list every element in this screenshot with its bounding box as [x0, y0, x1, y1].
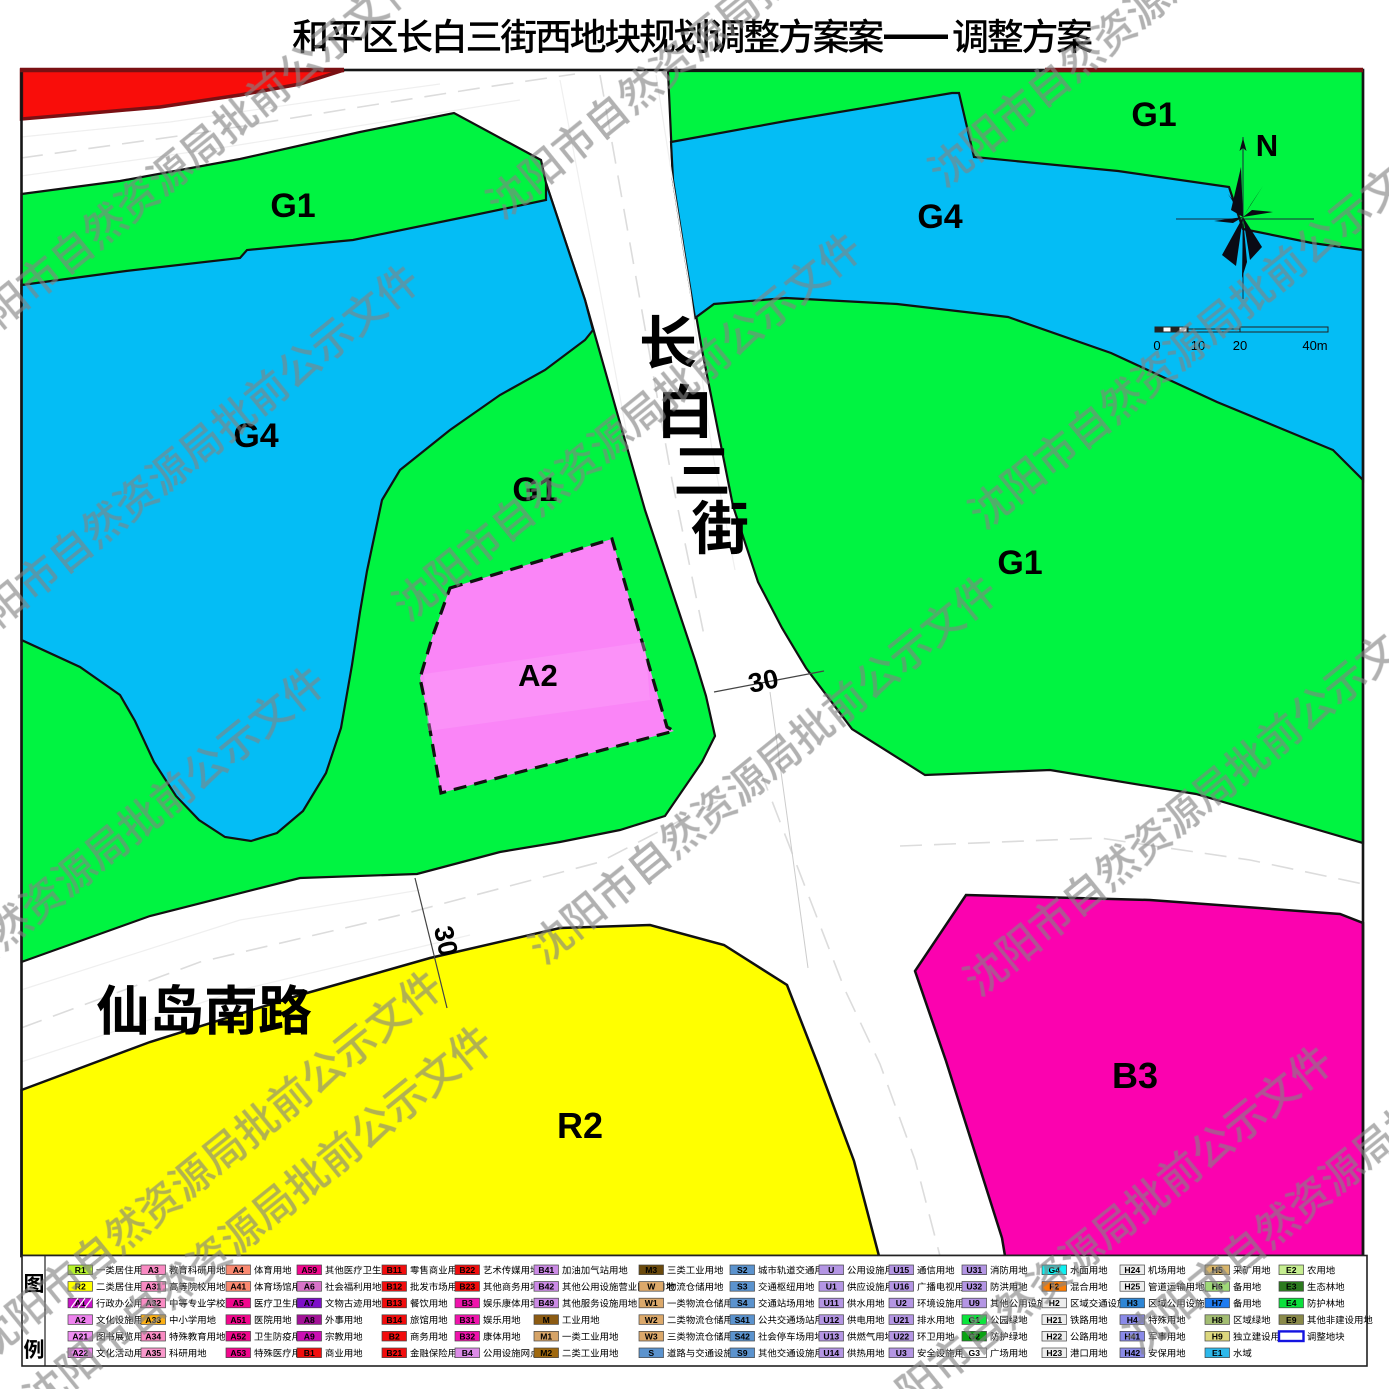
svg-text:H21: H21 — [1046, 1315, 1062, 1325]
svg-text:B11: B11 — [387, 1265, 403, 1275]
svg-text:B31: B31 — [459, 1315, 475, 1325]
svg-text:M2: M2 — [540, 1348, 552, 1358]
svg-text:B14: B14 — [386, 1315, 402, 1325]
svg-text:R2: R2 — [557, 1105, 603, 1146]
svg-text:U13: U13 — [823, 1331, 839, 1341]
svg-text:U32: U32 — [966, 1282, 982, 1292]
svg-text:B13: B13 — [386, 1298, 402, 1308]
svg-text:B21: B21 — [386, 1348, 402, 1358]
svg-text:H23: H23 — [1046, 1348, 1062, 1358]
svg-text:E1: E1 — [1212, 1348, 1223, 1358]
svg-text:A51: A51 — [230, 1315, 246, 1325]
svg-text:G4: G4 — [917, 198, 962, 236]
svg-text:E3: E3 — [1286, 1282, 1297, 1292]
svg-text:A8: A8 — [304, 1315, 315, 1325]
svg-text:A41: A41 — [230, 1282, 246, 1292]
svg-text:A7: A7 — [304, 1298, 315, 1308]
svg-text:G1: G1 — [1131, 96, 1176, 134]
svg-text:B23: B23 — [459, 1282, 475, 1292]
svg-text:H24: H24 — [1124, 1265, 1140, 1275]
svg-text:B12: B12 — [386, 1282, 402, 1292]
svg-text:S9: S9 — [737, 1348, 748, 1358]
svg-text:U21: U21 — [893, 1315, 909, 1325]
svg-text:B41: B41 — [538, 1265, 554, 1275]
svg-text:30: 30 — [746, 663, 782, 699]
svg-text:A4: A4 — [233, 1265, 244, 1275]
svg-text:30: 30 — [428, 923, 464, 959]
svg-text:A6: A6 — [304, 1282, 315, 1292]
svg-text:A35: A35 — [145, 1348, 161, 1358]
svg-text:H25: H25 — [1124, 1282, 1140, 1292]
svg-text:U14: U14 — [823, 1348, 839, 1358]
svg-text:M3: M3 — [645, 1265, 657, 1275]
svg-text:U31: U31 — [966, 1265, 982, 1275]
svg-text:U11: U11 — [824, 1298, 840, 1308]
svg-text:B4: B4 — [462, 1348, 473, 1358]
svg-text:A59: A59 — [301, 1265, 317, 1275]
svg-text:A5: A5 — [233, 1298, 244, 1308]
svg-text:H9: H9 — [1212, 1331, 1223, 1341]
svg-text:A9: A9 — [304, 1331, 315, 1341]
svg-text:W1: W1 — [645, 1298, 658, 1308]
svg-text:B3: B3 — [462, 1298, 473, 1308]
svg-text:S2: S2 — [737, 1265, 748, 1275]
svg-text:H7: H7 — [1212, 1298, 1223, 1308]
svg-text:S: S — [648, 1348, 654, 1358]
svg-text:U1: U1 — [826, 1282, 837, 1292]
svg-text:H3: H3 — [1127, 1298, 1138, 1308]
svg-text:A52: A52 — [230, 1331, 246, 1341]
svg-text:B32: B32 — [459, 1331, 475, 1341]
svg-text:G3: G3 — [969, 1348, 981, 1358]
svg-text:E9: E9 — [1286, 1315, 1297, 1325]
svg-text:B49: B49 — [538, 1298, 554, 1308]
svg-text:S4: S4 — [737, 1298, 748, 1308]
svg-text:20: 20 — [1233, 338, 1247, 353]
svg-text:G1: G1 — [997, 544, 1042, 582]
svg-text:H22: H22 — [1046, 1331, 1062, 1341]
svg-text:M: M — [543, 1315, 550, 1325]
svg-text:M1: M1 — [540, 1331, 552, 1341]
svg-text:G1: G1 — [270, 187, 315, 225]
svg-text:B2: B2 — [389, 1331, 400, 1341]
svg-text:B3: B3 — [1112, 1055, 1158, 1096]
svg-text:U15: U15 — [893, 1265, 909, 1275]
svg-text:U9: U9 — [969, 1298, 980, 1308]
svg-text:S42: S42 — [735, 1331, 751, 1341]
svg-text:H8: H8 — [1212, 1315, 1223, 1325]
svg-text:W3: W3 — [645, 1331, 658, 1341]
svg-text:U3: U3 — [896, 1348, 907, 1358]
svg-text:A34: A34 — [145, 1331, 161, 1341]
svg-text:U16: U16 — [893, 1282, 909, 1292]
svg-text:B22: B22 — [459, 1265, 475, 1275]
svg-text:40m: 40m — [1302, 338, 1327, 353]
svg-text:A2: A2 — [518, 658, 558, 693]
svg-text:B1: B1 — [304, 1348, 315, 1358]
svg-text:H42: H42 — [1124, 1348, 1140, 1358]
svg-text:A2: A2 — [75, 1315, 86, 1325]
svg-text:A21: A21 — [72, 1331, 88, 1341]
svg-text:A3: A3 — [148, 1265, 159, 1275]
svg-text:S3: S3 — [737, 1282, 748, 1292]
svg-text:A53: A53 — [230, 1348, 246, 1358]
svg-text:B42: B42 — [538, 1282, 554, 1292]
svg-text:U12: U12 — [823, 1315, 839, 1325]
svg-text:N: N — [1256, 128, 1278, 163]
svg-text:S41: S41 — [735, 1315, 751, 1325]
svg-text:U: U — [828, 1265, 834, 1275]
svg-text:U2: U2 — [896, 1298, 907, 1308]
svg-text:W2: W2 — [645, 1315, 658, 1325]
svg-text:E2: E2 — [1286, 1265, 1297, 1275]
svg-text:E4: E4 — [1286, 1298, 1297, 1308]
svg-text:U22: U22 — [893, 1331, 909, 1341]
svg-text:W: W — [647, 1282, 656, 1292]
